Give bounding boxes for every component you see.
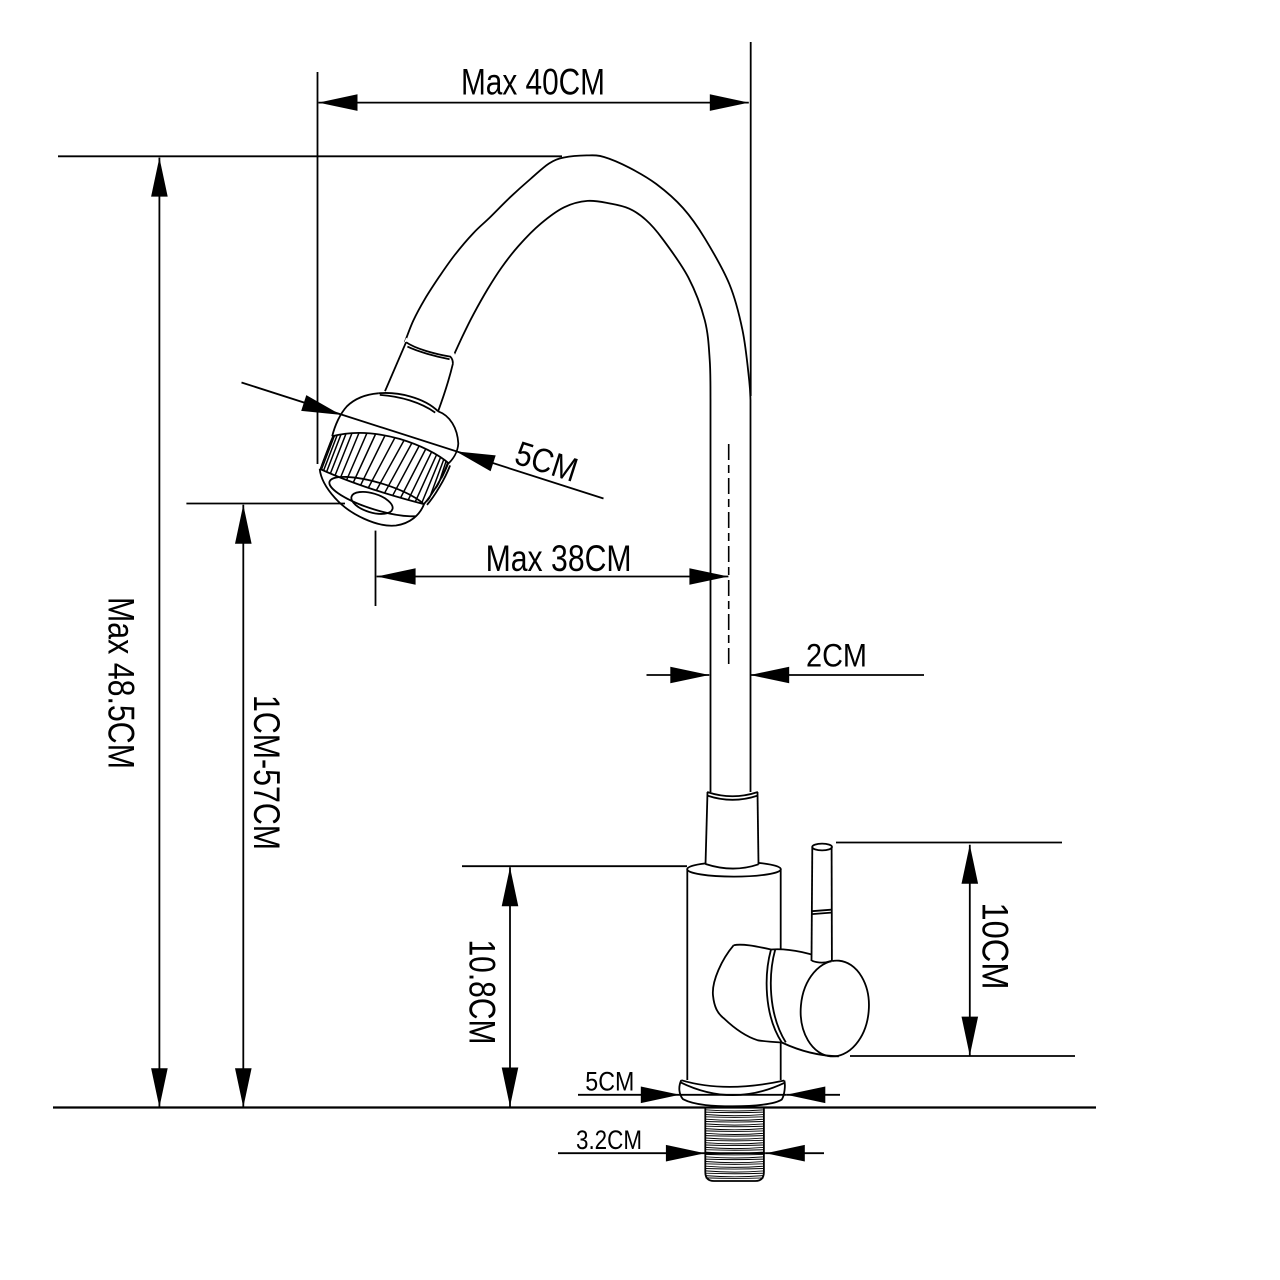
svg-text:Max 40CM: Max 40CM bbox=[461, 62, 605, 103]
svg-text:10CM: 10CM bbox=[975, 903, 1016, 990]
svg-text:2CM: 2CM bbox=[806, 637, 867, 673]
svg-text:3.2CM: 3.2CM bbox=[576, 1125, 642, 1155]
svg-text:1CM-57CM: 1CM-57CM bbox=[246, 695, 287, 850]
svg-text:5CM: 5CM bbox=[585, 1067, 634, 1097]
svg-text:10.8CM: 10.8CM bbox=[462, 940, 503, 1045]
svg-text:Max 48.5CM: Max 48.5CM bbox=[101, 597, 142, 769]
svg-text:Max 38CM: Max 38CM bbox=[486, 538, 632, 579]
